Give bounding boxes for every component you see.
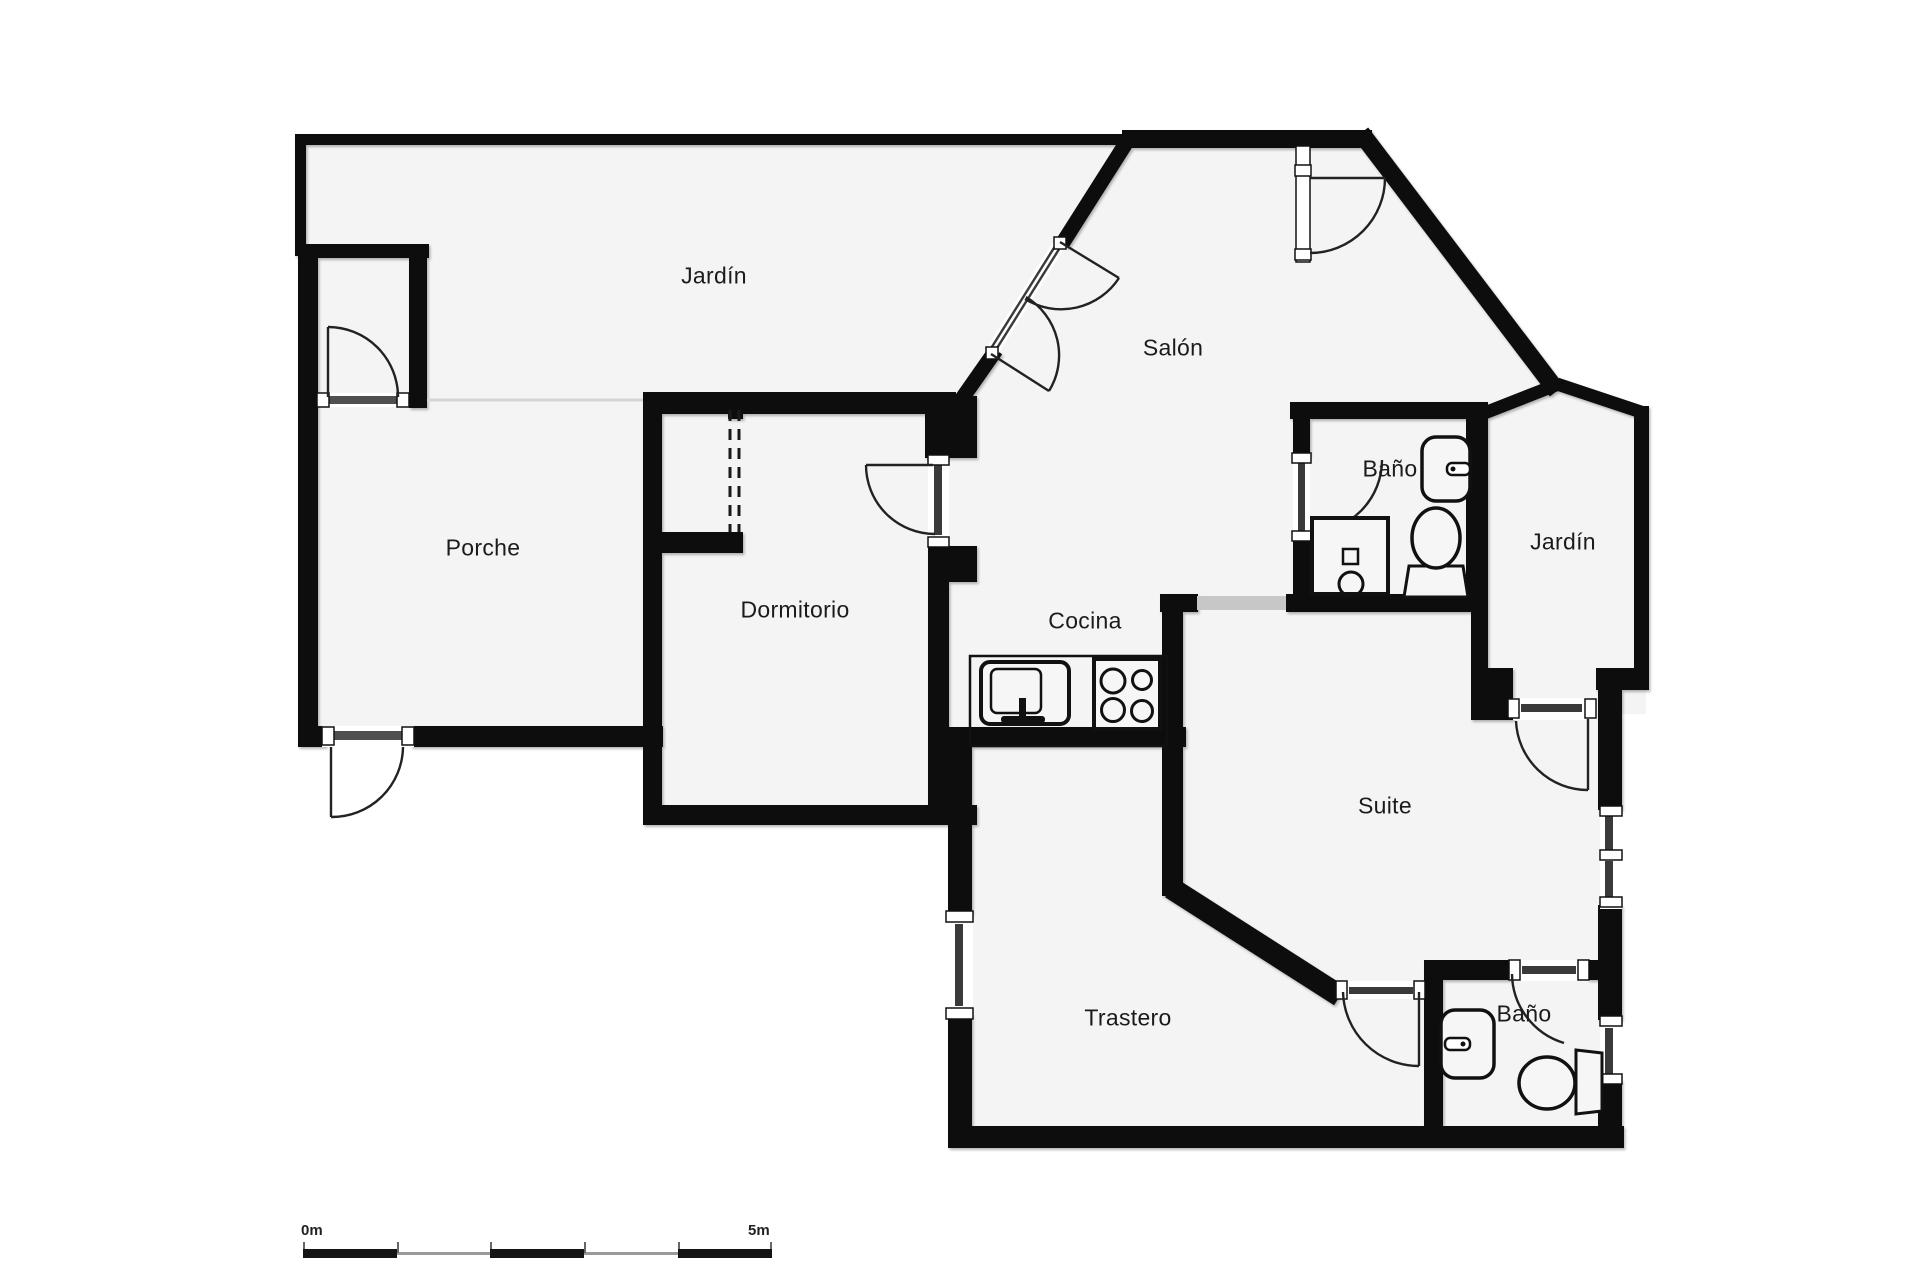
open-passage bbox=[1197, 596, 1286, 610]
bathroom-sink-top-icon bbox=[1422, 437, 1470, 501]
room-label-jardin-top: Jardín bbox=[681, 263, 747, 290]
bano-top-wall-top bbox=[1290, 402, 1488, 419]
stove-icon bbox=[1094, 659, 1160, 729]
room-label-bano-bottom: Baño bbox=[1497, 1001, 1552, 1028]
porche-door-opening bbox=[322, 726, 414, 747]
bano-bottom-door-opening bbox=[1509, 960, 1589, 981]
room-label-salon: Salón bbox=[1143, 335, 1203, 362]
dormitorio-closet-stub bbox=[655, 532, 743, 553]
room-label-porche: Porche bbox=[446, 535, 521, 562]
bathroom-sink-bottom-icon bbox=[1441, 1010, 1494, 1078]
trastero-window bbox=[946, 911, 973, 1019]
dormitorio-wall-right-upper bbox=[928, 396, 949, 458]
jardin-right-block-left bbox=[1471, 668, 1513, 720]
toilet-bottom-icon bbox=[1519, 1050, 1602, 1114]
salon-entry-door bbox=[1295, 146, 1311, 262]
bano-top-wall-left-a bbox=[1293, 402, 1310, 456]
dormitorio-wall-left bbox=[643, 392, 662, 825]
shower-tray-icon bbox=[1312, 518, 1388, 598]
scale-segment bbox=[490, 1249, 584, 1258]
closet-wall-right bbox=[409, 244, 427, 408]
floor-plan-page: Jardín Salón Porche Dormitorio Cocina Ba… bbox=[0, 0, 1920, 1280]
dormitorio-wall-right-lower bbox=[928, 544, 949, 825]
exterior-wall-bottom bbox=[948, 1126, 1624, 1148]
scale-start-label: 0m bbox=[301, 1222, 323, 1239]
suite-windows bbox=[1600, 806, 1622, 909]
scale-tick bbox=[584, 1242, 586, 1253]
jardin-right-wall-left bbox=[1471, 406, 1488, 687]
room-label-jardin-right: Jardín bbox=[1530, 529, 1596, 556]
salon-wall-top bbox=[1122, 130, 1372, 148]
room-label-suite: Suite bbox=[1358, 793, 1412, 820]
room-label-cocina: Cocina bbox=[1048, 608, 1121, 635]
scale-segment bbox=[303, 1249, 397, 1258]
room-label-trastero: Trastero bbox=[1084, 1005, 1171, 1032]
dormitorio-wall-right-chunk bbox=[948, 546, 977, 582]
porche-wall-bottom-b bbox=[411, 726, 663, 747]
trastero-wall-left-lower bbox=[948, 1014, 972, 1128]
kitchen-sink-icon bbox=[981, 662, 1069, 724]
exterior-wall-right-a bbox=[1598, 688, 1622, 810]
bano-top-door-opening bbox=[1292, 453, 1311, 541]
exterior-wall-right-b bbox=[1598, 905, 1622, 1020]
bano-bottom-wall-top-a bbox=[1424, 960, 1512, 980]
jardin-right-door-opening bbox=[1508, 698, 1596, 720]
trastero-door-opening bbox=[1336, 981, 1425, 999]
floor-plan-drawing bbox=[0, 0, 1920, 1280]
jardin-right-wall-right bbox=[1634, 406, 1649, 678]
dormitorio-wall-top bbox=[643, 392, 956, 414]
room-label-bano-top: Baño bbox=[1363, 456, 1418, 483]
exterior-wall-left bbox=[298, 244, 318, 747]
scale-segment bbox=[678, 1249, 772, 1258]
porche-door-swing bbox=[331, 747, 403, 817]
scale-tick bbox=[397, 1242, 399, 1253]
scale-end-label: 5m bbox=[748, 1222, 770, 1239]
fence-left bbox=[295, 134, 306, 256]
room-label-dormitorio: Dormitorio bbox=[740, 597, 849, 624]
closet-door-opening bbox=[317, 393, 409, 407]
jardin-right-block-right bbox=[1596, 668, 1649, 690]
fence-top bbox=[295, 134, 1133, 145]
trastero-wall-left-upper bbox=[948, 727, 972, 915]
dormitorio-wall-bottom bbox=[643, 805, 977, 825]
